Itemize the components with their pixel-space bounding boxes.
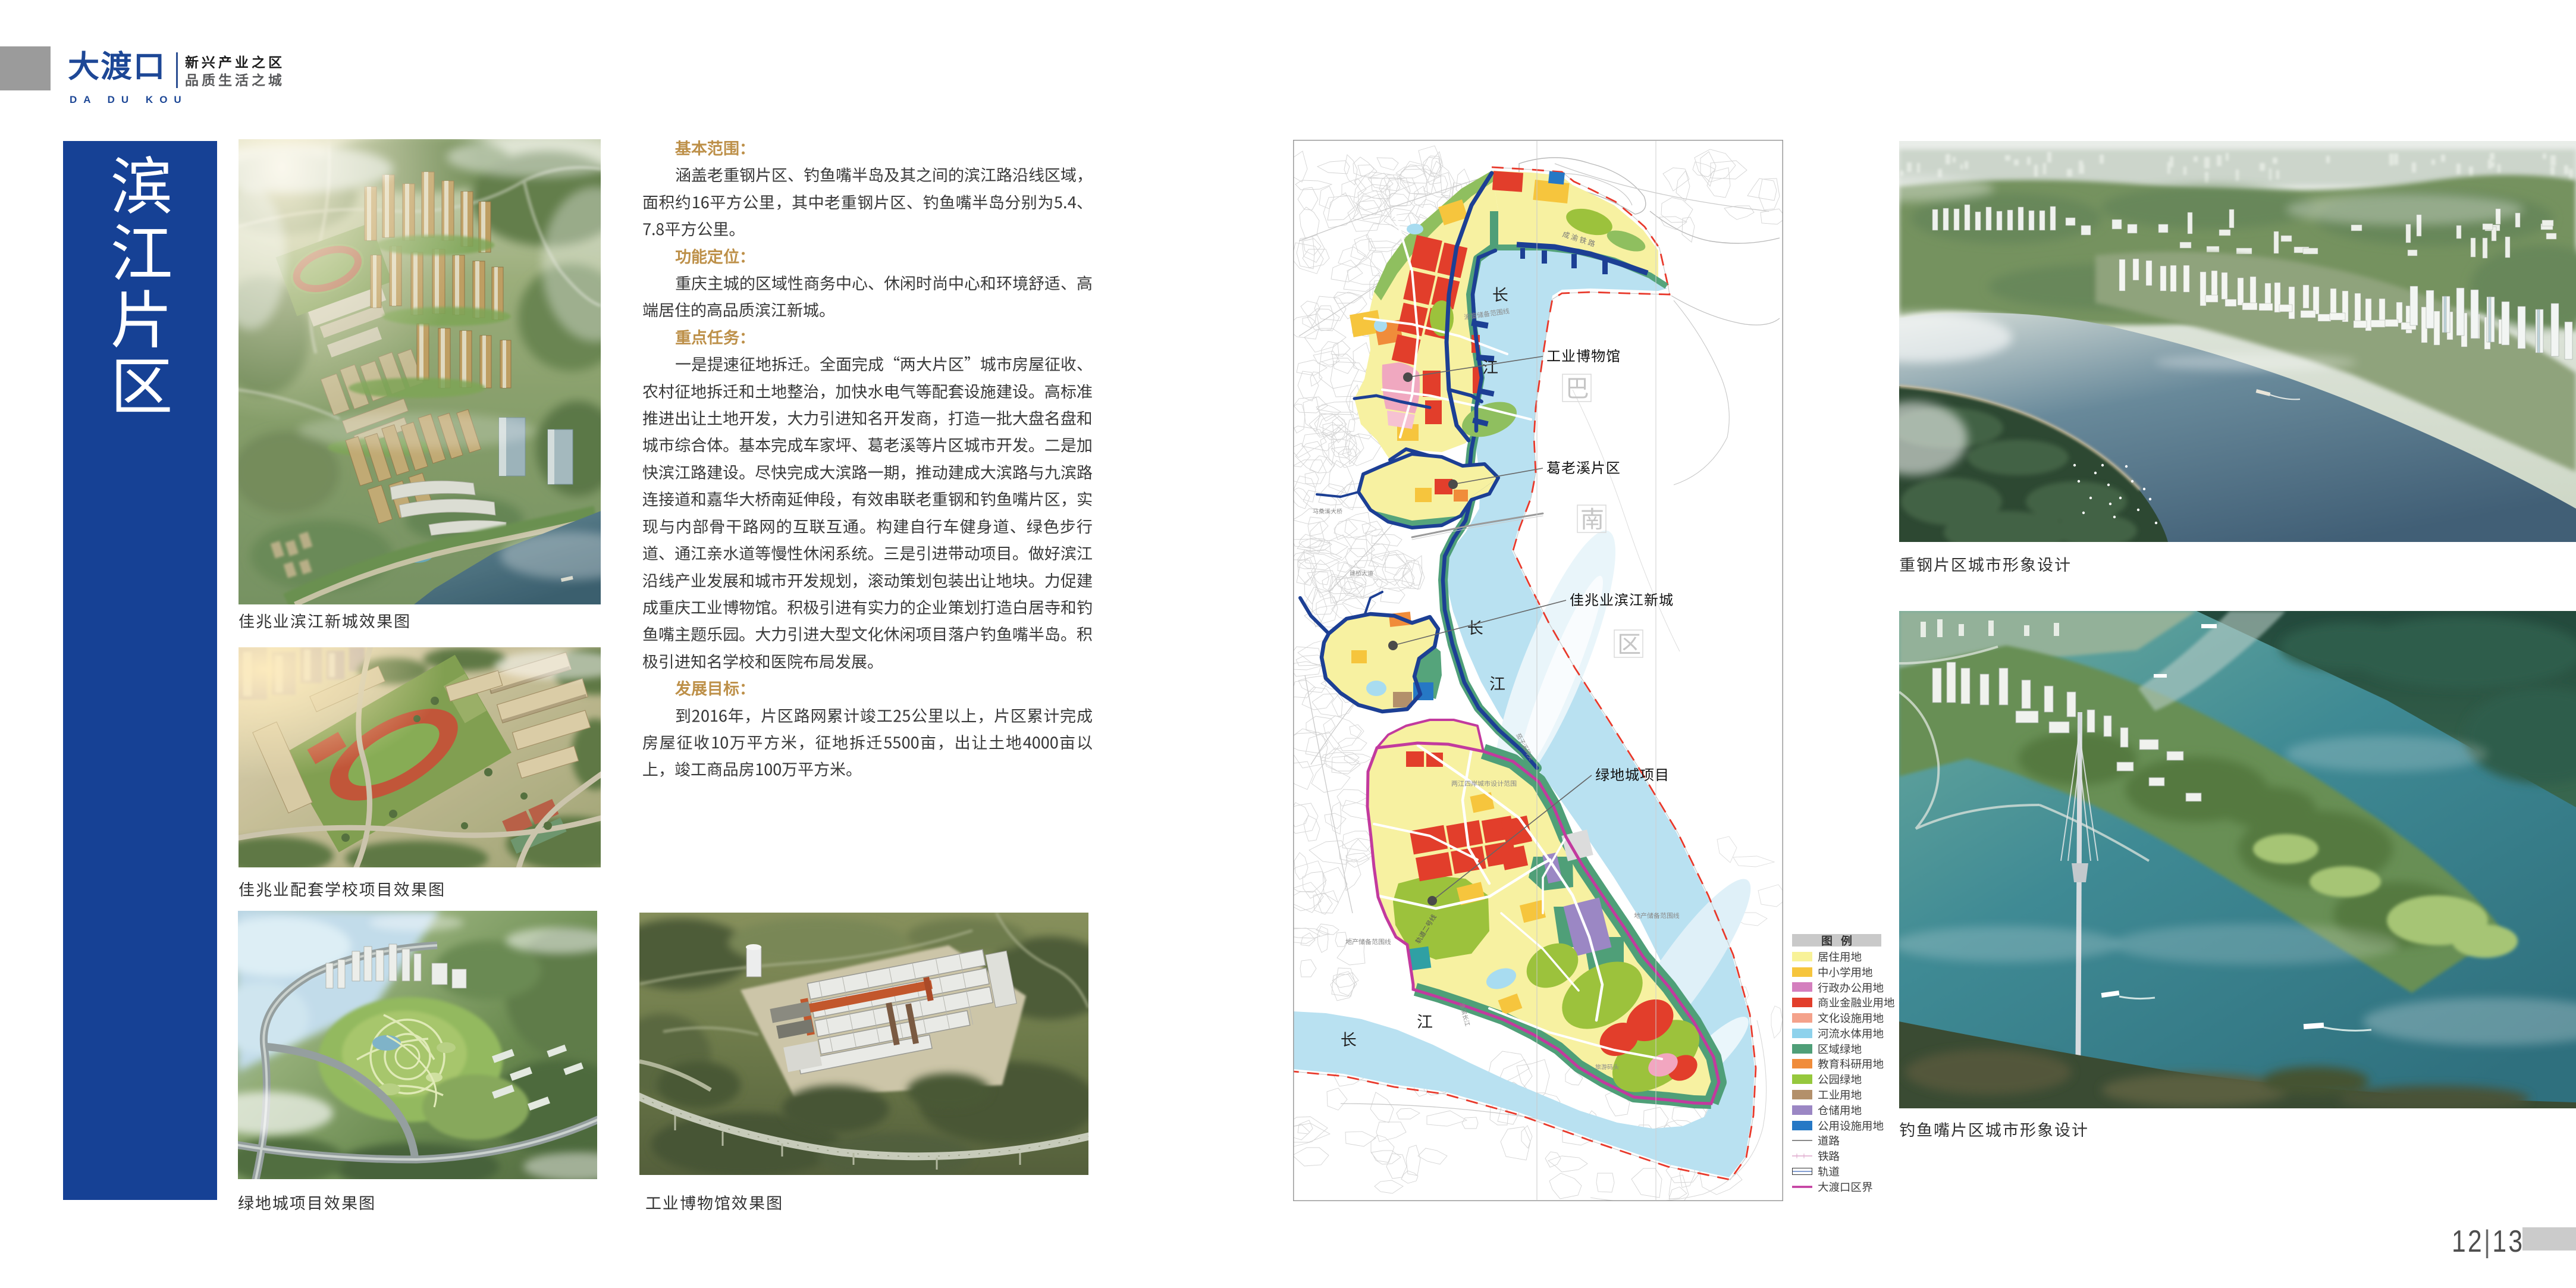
- svg-text:葛老溪片区: 葛老溪片区: [1546, 456, 1621, 477]
- svg-text:工业博物馆: 工业博物馆: [1546, 344, 1621, 365]
- svg-text:江: 江: [1482, 355, 1498, 378]
- svg-text:马桑溪大桥: 马桑溪大桥: [1313, 506, 1342, 515]
- svg-text:地产储备范围线: 地产储备范围线: [1345, 937, 1391, 947]
- svg-text:江: 江: [1417, 1009, 1433, 1032]
- svg-text:区: 区: [1617, 625, 1641, 660]
- svg-text:巴: 巴: [1565, 369, 1589, 404]
- svg-text:地产储备范围线: 地产储备范围线: [1634, 911, 1680, 920]
- svg-text:长: 长: [1492, 282, 1508, 305]
- svg-text:旅游码头: 旅游码头: [1595, 1062, 1619, 1071]
- svg-text:建桥大道: 建桥大道: [1350, 568, 1373, 577]
- svg-text:长: 长: [1341, 1027, 1357, 1050]
- svg-text:绿地城项目: 绿地城项目: [1595, 763, 1670, 784]
- svg-text:南: 南: [1580, 500, 1604, 535]
- svg-text:长: 长: [1467, 615, 1483, 638]
- svg-text:两江四岸城市设计范围: 两江四岸城市设计范围: [1451, 779, 1517, 788]
- svg-text:佳兆业滨江新城: 佳兆业滨江新城: [1570, 588, 1674, 609]
- svg-text:江: 江: [1489, 671, 1505, 694]
